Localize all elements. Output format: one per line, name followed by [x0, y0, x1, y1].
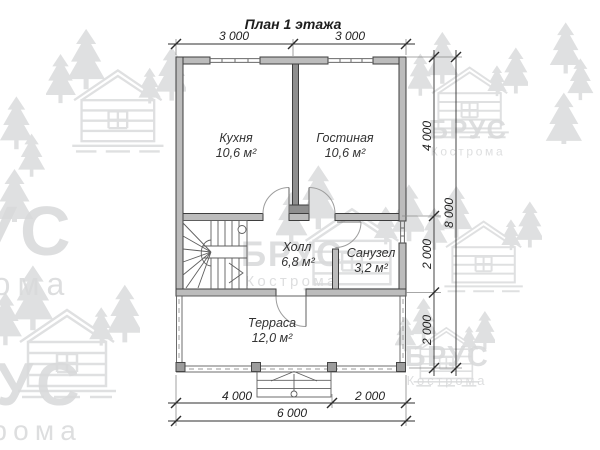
wall-segment — [289, 205, 309, 214]
room-area-living: 10,6 м² — [325, 146, 366, 160]
bathroom-partition — [333, 249, 339, 289]
wall-segment — [293, 64, 299, 205]
dim-label: 3 000 — [219, 29, 249, 43]
window-living — [328, 59, 373, 63]
post — [176, 363, 185, 372]
terrace-posts — [176, 363, 406, 372]
wall-segment — [289, 214, 309, 221]
stair-direction-arrow — [229, 263, 243, 283]
stair-post — [238, 226, 246, 234]
dim-label: 4 000 — [420, 121, 434, 151]
plan-title: План 1 этажа — [245, 16, 342, 32]
wall-segment — [260, 57, 328, 64]
window-bathroom — [401, 221, 405, 243]
door-kitchen — [263, 188, 289, 214]
dim-label: 8 000 — [442, 198, 456, 228]
stair-treads-upper — [211, 221, 239, 247]
post — [252, 363, 261, 372]
entrance-steps — [257, 372, 331, 398]
floor-plan-page: БРУС Кострома БРУС Кострома БРУС Костром… — [0, 0, 600, 450]
dimension-lines — [168, 39, 462, 426]
window-kitchen — [210, 59, 260, 63]
dim-label: 4 000 — [222, 389, 252, 403]
door-living — [309, 188, 335, 214]
room-area-bathroom: 3,2 м² — [354, 261, 388, 275]
dim-label: 3 000 — [335, 29, 365, 43]
room-area-kitchen: 10,6 м² — [216, 146, 257, 160]
dim-label: 2 000 — [354, 389, 385, 403]
wall-segment — [399, 243, 406, 296]
room-name-bathroom: Санузел — [347, 246, 396, 260]
wall-segment — [176, 57, 183, 296]
door-bathroom — [336, 222, 362, 248]
wall-segment — [306, 289, 406, 296]
wall-segment — [335, 214, 399, 221]
stair-treads-lower — [211, 258, 239, 289]
dim-label: 6 000 — [277, 406, 307, 420]
post — [328, 363, 337, 372]
wall-segment — [183, 214, 263, 221]
room-name-terrace: Терраса — [248, 316, 296, 330]
dim-label: 2 000 — [420, 315, 434, 346]
floor-plan-drawing: План 1 этажа 3 000 3 000 4 000 2 000 2 0… — [0, 0, 600, 450]
kitchen-living-partition — [289, 64, 309, 214]
wall-segment — [399, 57, 406, 221]
post — [397, 363, 406, 372]
room-name-living: Гостиная — [316, 131, 373, 145]
staircase — [183, 221, 247, 290]
room-name-hall: Холл — [282, 240, 312, 254]
room-name-kitchen: Кухня — [219, 131, 253, 145]
room-area-terrace: 12,0 м² — [252, 331, 293, 345]
stair-winders — [183, 223, 211, 288]
dim-label: 2 000 — [420, 239, 434, 270]
room-area-hall: 6,8 м² — [281, 255, 315, 269]
wall-segment — [176, 289, 276, 296]
